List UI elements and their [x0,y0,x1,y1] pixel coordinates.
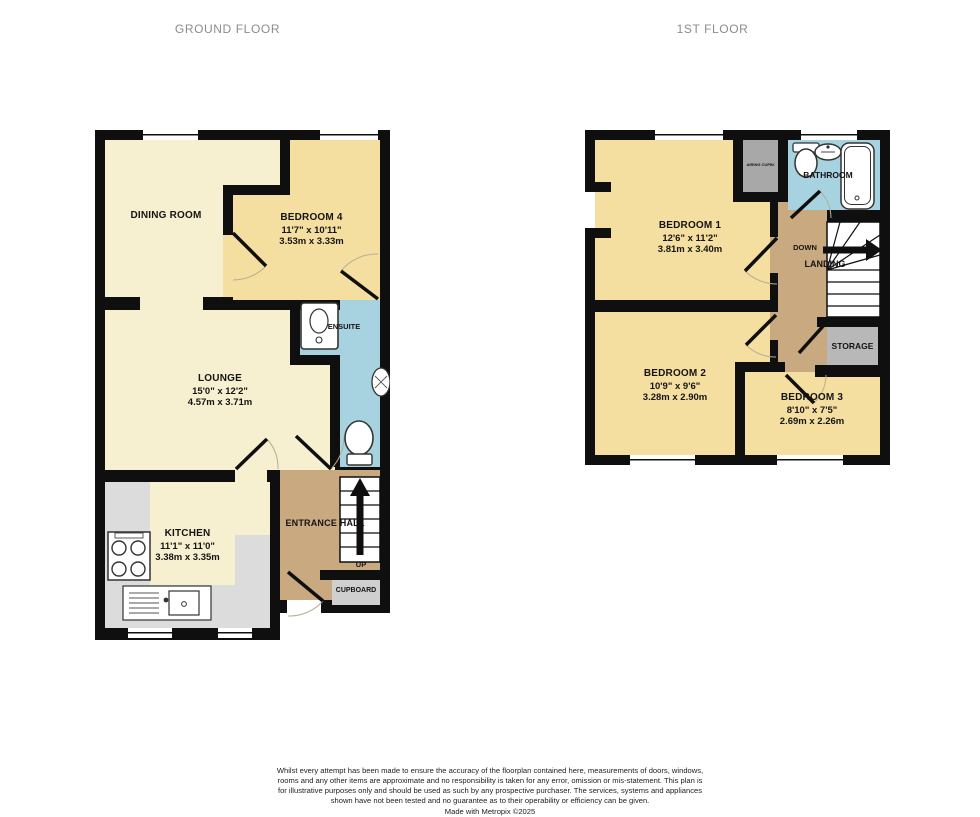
door-leaf-lounge-hall [296,436,331,469]
bedroom2-label: BEDROOM 2 10'9" x 9'6" 3.28m x 2.90m [595,368,755,404]
bedroom3-name: BEDROOM 3 [745,392,879,405]
door-arc [746,345,776,357]
bedroom2-name: BEDROOM 2 [595,368,755,381]
floorplan-page: GROUND FLOOR 1ST FLOOR CUPBOARD [0,0,980,817]
bedroom2-size-metric: 3.28m x 2.90m [595,392,755,404]
disclaimer-text: Whilst every attempt has been made to en… [275,766,705,806]
door-arc [233,266,266,280]
kitchen-label: KITCHEN 11'1" x 11'0" 3.38m x 3.35m [105,528,270,564]
ensuite-toilet-icon [345,421,373,465]
kitchen-size-imperial: 11'1" x 11'0" [105,541,270,553]
lounge-label: LOUNGE 15'0" x 12'2" 4.57m x 3.71m [105,373,335,409]
bedroom4-size-imperial: 11'7" x 10'11" [243,225,380,237]
door-arc [745,271,777,284]
first-floor-title: 1ST FLOOR [560,22,865,36]
kitchen-sink-icon [123,586,211,620]
door-leaf-front-door [288,572,323,601]
kitchen-name: KITCHEN [105,528,270,541]
bathroom-label: BATHROOM [782,170,874,180]
door-leaf-kitchen [236,439,267,469]
ensuite-label: ENSUITE [298,322,390,331]
entrance-hall-label: ENTRANCE HALL [260,518,390,528]
footer: Whilst every attempt has been made to en… [0,766,980,816]
staircase-down [823,222,882,317]
bedroom4-name: BEDROOM 4 [243,212,380,225]
bedroom1-name: BEDROOM 1 [595,220,785,233]
dining-room-name: DINING ROOM [105,210,227,223]
down-label: DOWN [775,243,835,252]
bedroom1-size-imperial: 12'6" x 11'2" [595,233,785,245]
ground-floor-plan: CUPBOARD [95,130,390,640]
dining-room-label: DINING ROOM [105,210,227,223]
door-leaf-storage [799,324,825,353]
landing-label: LANDING [770,259,880,269]
bedroom2-size-imperial: 10'9" x 9'6" [595,381,755,393]
lounge-name: LOUNGE [105,373,335,386]
bedroom1-label: BEDROOM 1 12'6" x 11'2" 3.81m x 3.40m [595,220,785,256]
door-arc [288,601,323,616]
bedroom1-size-metric: 3.81m x 3.40m [595,244,785,256]
bedroom3-label: BEDROOM 3 8'10" x 7'5" 2.69m x 2.26m [745,392,879,428]
bathroom-sink-icon [815,144,841,160]
lounge-size-metric: 4.57m x 3.71m [105,397,335,409]
door-arc [799,353,825,363]
bedroom3-size-metric: 2.69m x 2.26m [745,416,879,428]
door-arc [331,437,344,469]
door-arc [267,439,278,469]
bedroom4-size-metric: 3.53m x 3.33m [243,236,380,248]
door-leaf-bathroom [791,191,820,218]
door-arc [820,191,831,218]
lounge-size-imperial: 15'0" x 12'2" [105,386,335,398]
bedroom4-label: BEDROOM 4 11'7" x 10'11" 3.53m x 3.33m [243,212,380,248]
kitchen-size-metric: 3.38m x 3.35m [105,552,270,564]
door-leaf-bedroom2 [746,315,776,345]
bedroom3-size-imperial: 8'10" x 7'5" [745,405,879,417]
door-leaf-bedroom4-corridor [341,271,378,299]
first-floor-plan: AIRING CUPBOARD STORAGE [585,130,890,465]
up-label: UP [338,560,384,569]
credit-text: Made with Metropix ©2025 [0,807,980,816]
door-arc [341,254,378,271]
radiator-icon [372,368,390,396]
ground-floor-title: GROUND FLOOR [80,22,375,36]
